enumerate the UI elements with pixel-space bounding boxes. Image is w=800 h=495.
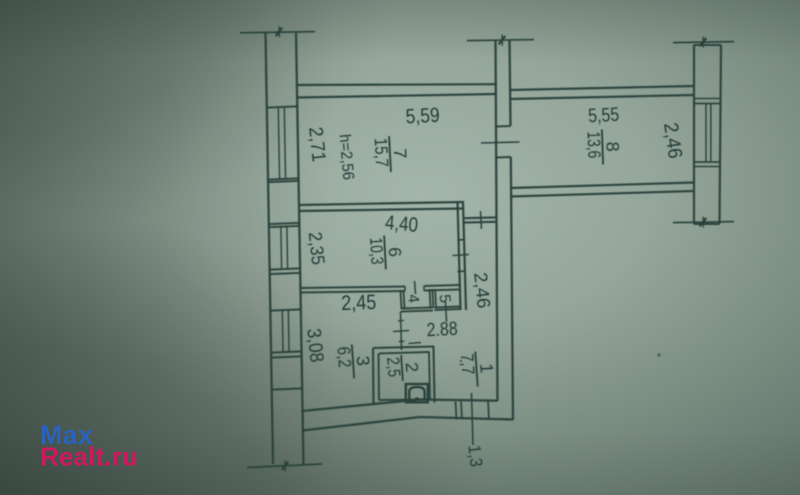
svg-text:Realt.ru: Realt.ru — [40, 444, 138, 472]
